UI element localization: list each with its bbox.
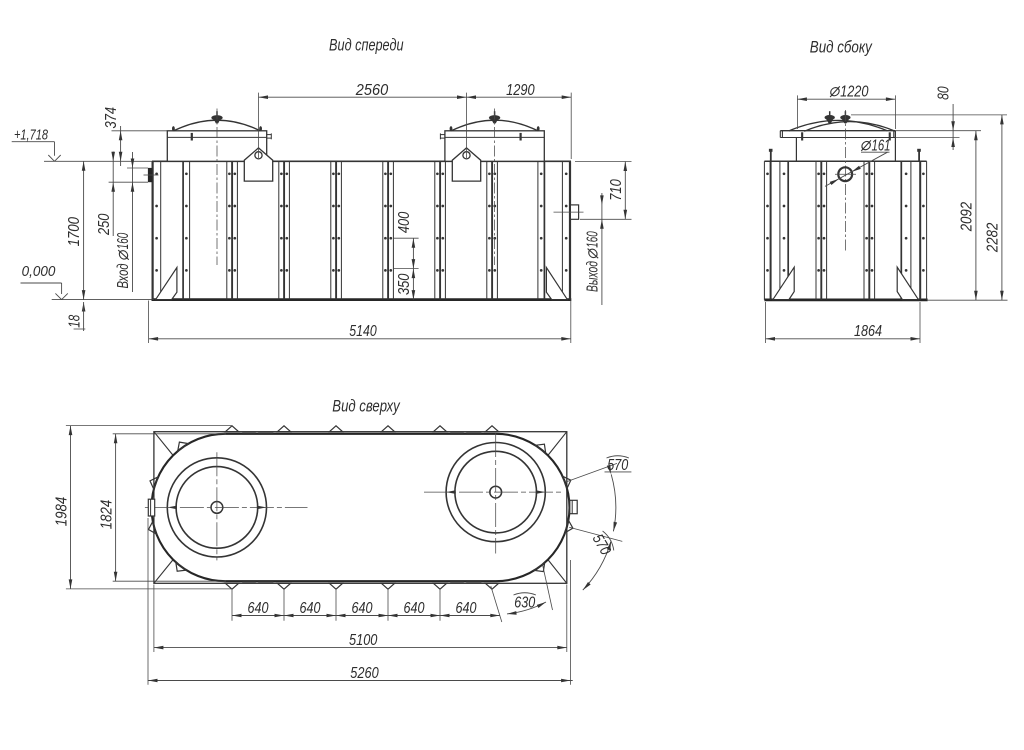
svg-text:350: 350 <box>396 273 413 295</box>
svg-text:640: 640 <box>248 600 269 617</box>
svg-text:250: 250 <box>96 213 113 236</box>
svg-text:640: 640 <box>456 600 477 617</box>
svg-text:80: 80 <box>936 86 953 100</box>
svg-text:640: 640 <box>352 600 373 617</box>
svg-text:Вход: Вход <box>115 263 132 288</box>
svg-text:1220: 1220 <box>840 83 869 100</box>
svg-text:630: 630 <box>514 595 535 612</box>
svg-text:1700: 1700 <box>66 217 83 247</box>
svg-text:5260: 5260 <box>350 665 379 682</box>
svg-text:Вид сбоку: Вид сбоку <box>810 37 873 56</box>
svg-text:2282: 2282 <box>984 222 1001 253</box>
svg-text:640: 640 <box>404 600 425 617</box>
svg-text:1290: 1290 <box>506 82 535 99</box>
svg-text:Вид спереди: Вид спереди <box>329 36 404 55</box>
svg-text:0,000: 0,000 <box>22 264 56 280</box>
svg-text:5140: 5140 <box>349 323 377 340</box>
svg-text:160: 160 <box>585 231 602 248</box>
svg-text:Выход: Выход <box>585 261 602 292</box>
svg-text:160: 160 <box>115 233 132 250</box>
svg-text:1984: 1984 <box>53 496 70 526</box>
svg-text:1824: 1824 <box>98 499 115 529</box>
svg-text:640: 640 <box>300 600 321 617</box>
svg-text:Вид сверху: Вид сверху <box>332 396 401 415</box>
svg-text:400: 400 <box>396 211 413 233</box>
svg-text:710: 710 <box>608 179 625 201</box>
svg-text:+1,718: +1,718 <box>14 128 48 144</box>
svg-text:1864: 1864 <box>854 323 882 340</box>
svg-text:161: 161 <box>872 137 891 154</box>
svg-text:2092: 2092 <box>958 202 975 233</box>
svg-text:2560: 2560 <box>355 82 389 99</box>
svg-text:18: 18 <box>67 315 84 328</box>
svg-text:5100: 5100 <box>349 632 378 649</box>
svg-text:374: 374 <box>103 107 120 129</box>
